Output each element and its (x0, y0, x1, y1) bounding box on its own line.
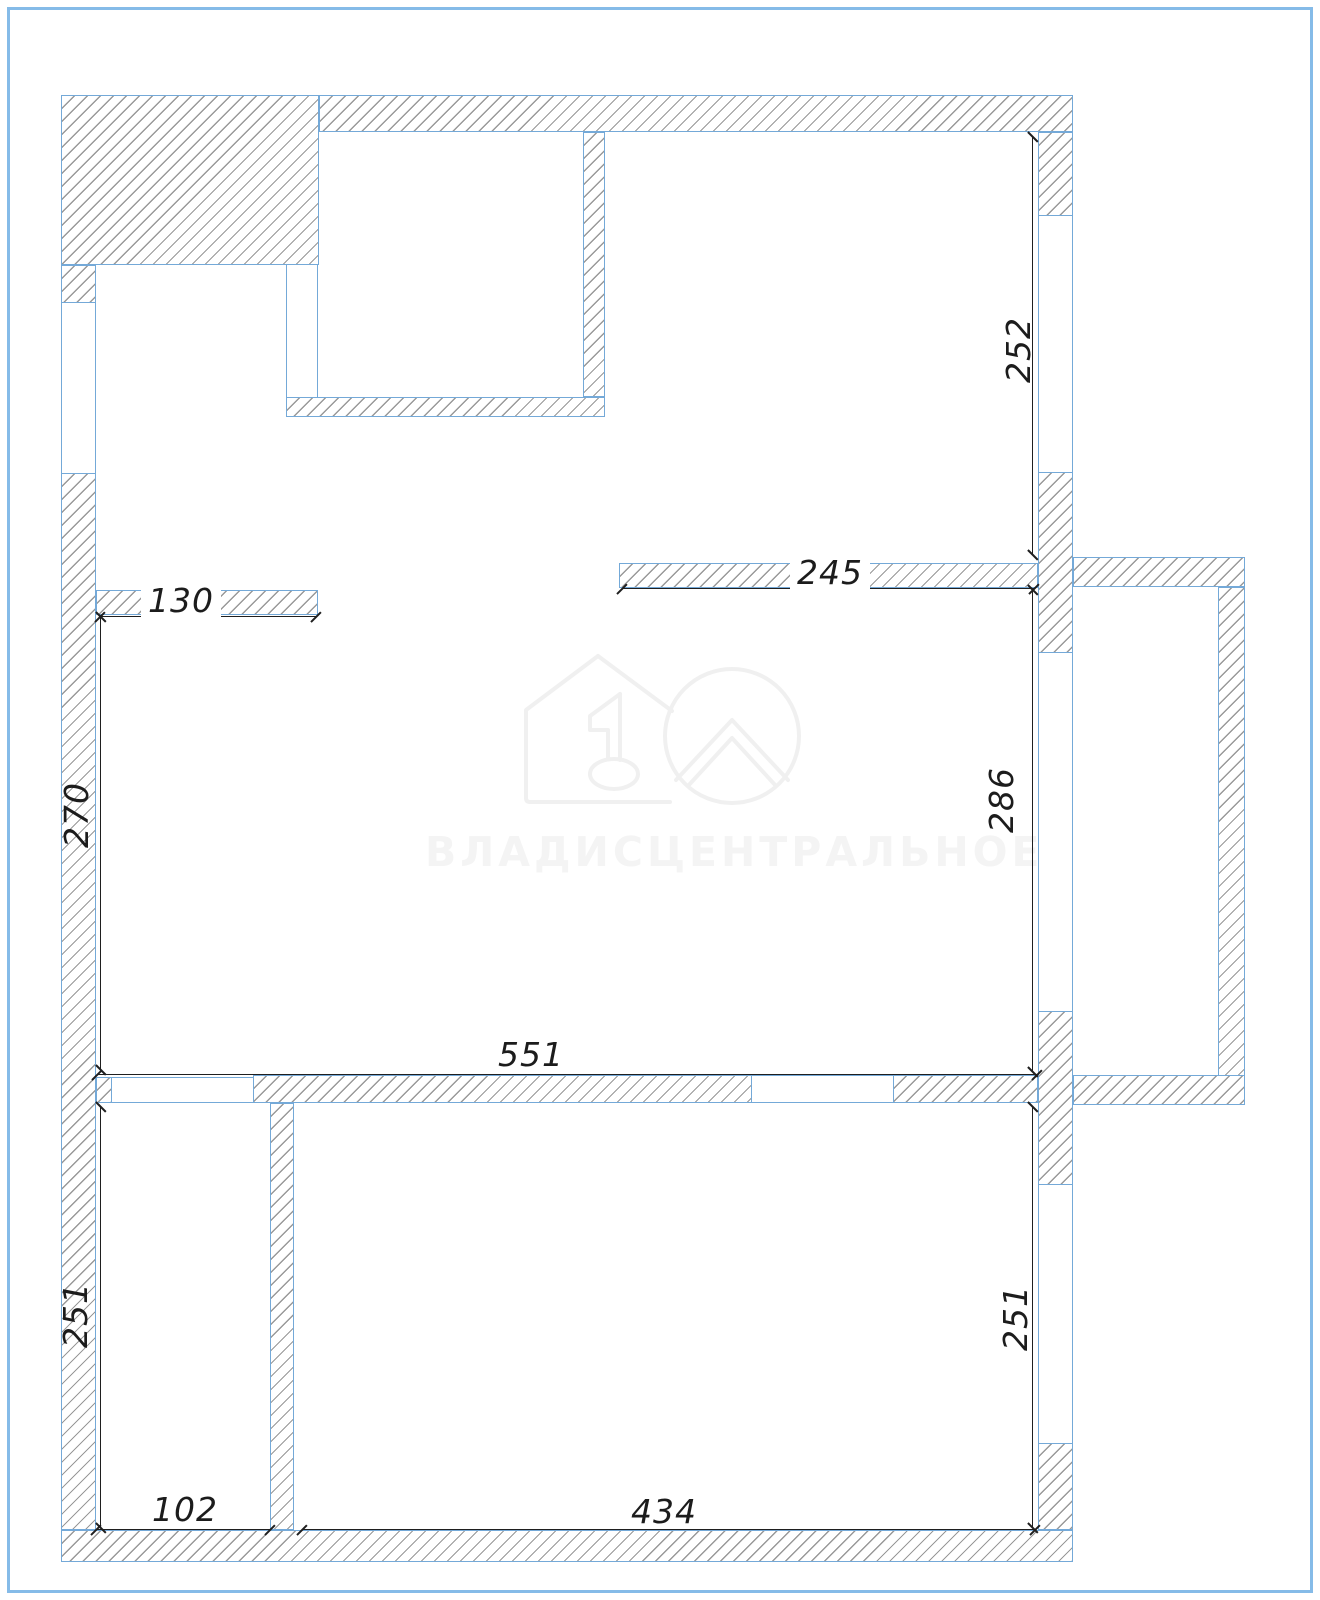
watermark-logo-icon (430, 650, 890, 820)
doorway-bottom-right (752, 1075, 893, 1103)
dim-line-286 (1032, 590, 1033, 1072)
wall-right-seg-1 (1038, 132, 1073, 216)
watermark-number-1-key (590, 694, 620, 758)
dim-label-286: 286 (984, 720, 1020, 880)
dim-label-130: 130 (101, 583, 261, 619)
wall-right-seg-3 (1038, 1011, 1073, 1185)
wall-annex-right (1218, 587, 1245, 1105)
window-right-top (1038, 216, 1073, 472)
wall-center-bottom-stub (96, 1077, 112, 1103)
wall-top-left-block (61, 95, 319, 265)
dim-label-270: 270 (59, 735, 95, 895)
watermark-key-bow (590, 759, 638, 789)
dim-label-245: 245 (750, 555, 910, 591)
wall-annex-top (1073, 557, 1245, 587)
dim-label-102: 102 (105, 1492, 265, 1528)
watermark-roof-chevron (676, 720, 788, 780)
wall-bottom-divider (270, 1103, 294, 1530)
wall-bottom (61, 1530, 1073, 1562)
wall-square-room-right (583, 132, 605, 397)
watermark-circle (665, 669, 799, 803)
dim-line-102 (96, 1529, 270, 1530)
dim-line-270 (100, 617, 101, 1070)
dim-line-251-left (100, 1107, 101, 1528)
wall-center-bottom-seg-1 (253, 1075, 752, 1103)
watermark: ВЛАДИСЦЕНТРАЛЬНОЕ (425, 650, 895, 900)
dim-label-251-right: 251 (998, 1238, 1034, 1398)
dim-label-551: 551 (451, 1037, 611, 1073)
window-left (61, 303, 96, 473)
dim-line-551 (97, 1074, 1037, 1075)
window-right-bottom (1038, 1185, 1073, 1443)
wall-center-bottom-seg-2 (893, 1075, 1038, 1103)
wall-annex-bottom (1073, 1075, 1245, 1105)
opening-square-room-left (286, 265, 318, 397)
wall-left-seg-1 (61, 265, 96, 303)
doorway-bottom-left (112, 1077, 253, 1103)
wall-right-seg-2 (1038, 472, 1073, 653)
dim-label-434: 434 (584, 1494, 744, 1530)
opening-right-to-annex (1038, 653, 1073, 1011)
wall-square-room-bottom (286, 397, 605, 417)
watermark-house-outline (526, 656, 670, 802)
watermark-house-roof-right (598, 656, 672, 711)
watermark-text: ВЛАДИСЦЕНТРАЛЬНОЕ (425, 828, 895, 876)
wall-right-seg-4 (1038, 1443, 1073, 1530)
dim-label-252: 252 (1001, 270, 1037, 430)
dim-label-251-left: 251 (58, 1235, 94, 1395)
wall-top (319, 95, 1073, 132)
